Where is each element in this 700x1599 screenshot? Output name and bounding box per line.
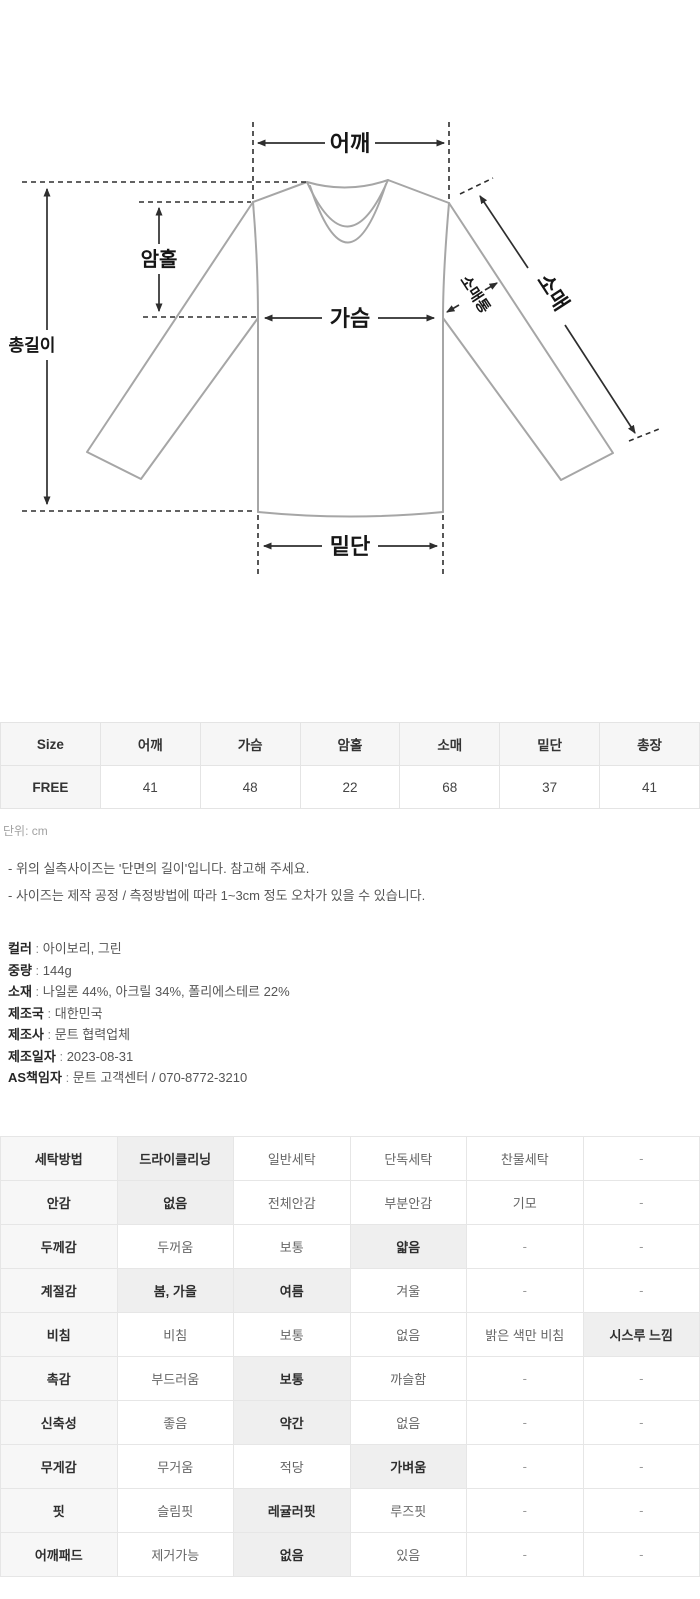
care-row-label: 어깨패드 bbox=[1, 1532, 118, 1576]
product-info-value: 문트 고객센터 / 070-8772-3210 bbox=[73, 1070, 247, 1085]
product-info-line: 소재 : 나일론 44%, 아크릴 34%, 폴리에스테르 22% bbox=[8, 981, 700, 1003]
label-armhole: 암홀 bbox=[141, 247, 178, 271]
product-info-value: 2023-08-31 bbox=[67, 1049, 134, 1064]
size-value-cell: 41 bbox=[100, 766, 200, 809]
care-row-label: 계절감 bbox=[1, 1268, 118, 1312]
product-info-separator: : bbox=[62, 1070, 73, 1085]
size-table-header-cell: Size bbox=[1, 723, 101, 766]
garment-measurement-diagram: 어깨 총길이 암홀 가슴 bbox=[0, 0, 700, 600]
care-option: 루즈핏 bbox=[350, 1488, 467, 1532]
care-option: - bbox=[583, 1400, 700, 1444]
size-value-cell: 68 bbox=[400, 766, 500, 809]
size-table-header-cell: 어깨 bbox=[100, 723, 200, 766]
product-info-separator: : bbox=[32, 984, 43, 999]
care-option: 무거움 bbox=[117, 1444, 234, 1488]
care-option: 슬림핏 bbox=[117, 1488, 234, 1532]
shirt-outline bbox=[87, 180, 613, 517]
product-detail-page: 어깨 총길이 암홀 가슴 bbox=[0, 0, 700, 1599]
size-table-header-cell: 총장 bbox=[600, 723, 700, 766]
size-value-cell: 22 bbox=[300, 766, 400, 809]
care-option: 보통 bbox=[234, 1224, 351, 1268]
product-info-line: 제조일자 : 2023-08-31 bbox=[8, 1046, 700, 1068]
product-info-line: 제조국 : 대한민국 bbox=[8, 1003, 700, 1025]
product-info-separator: : bbox=[56, 1049, 67, 1064]
care-row-label: 비침 bbox=[1, 1312, 118, 1356]
care-option: - bbox=[583, 1488, 700, 1532]
care-option-selected: 레귤러핏 bbox=[234, 1488, 351, 1532]
label-shoulder: 어깨 bbox=[330, 131, 370, 156]
care-option-selected: 없음 bbox=[234, 1532, 351, 1576]
label-sleeve-width: 소매통 bbox=[456, 273, 493, 317]
care-table: 세탁방법드라이클리닝일반세탁단독세탁찬물세탁-안감없음전체안감부분안감기모-두께… bbox=[0, 1136, 700, 1577]
size-value-cell: 37 bbox=[500, 766, 600, 809]
measure-sleeve: 소매 bbox=[480, 196, 635, 433]
care-table-row: 신축성좋음약간없음-- bbox=[1, 1400, 700, 1444]
care-table-row: 두께감두꺼움보통얇음-- bbox=[1, 1224, 700, 1268]
measure-total-length: 총길이 bbox=[9, 189, 56, 504]
care-table-row: 계절감봄, 가을여름겨울-- bbox=[1, 1268, 700, 1312]
care-row-label: 두께감 bbox=[1, 1224, 118, 1268]
measure-shoulder: 어깨 bbox=[258, 131, 444, 156]
care-option: - bbox=[583, 1180, 700, 1224]
care-row-label: 신축성 bbox=[1, 1400, 118, 1444]
product-info-value: 아이보리, 그린 bbox=[43, 941, 122, 956]
product-info-line: 컬러 : 아이보리, 그린 bbox=[8, 938, 700, 960]
care-option: - bbox=[583, 1532, 700, 1576]
size-value-cell: 41 bbox=[600, 766, 700, 809]
care-table-row: 세탁방법드라이클리닝일반세탁단독세탁찬물세탁- bbox=[1, 1136, 700, 1180]
care-option: - bbox=[583, 1224, 700, 1268]
unit-note: 단위: cm bbox=[0, 822, 700, 839]
care-option: 일반세탁 bbox=[234, 1136, 351, 1180]
care-row-label: 세탁방법 bbox=[1, 1136, 118, 1180]
care-option-selected: 봄, 가을 bbox=[117, 1268, 234, 1312]
product-info-separator: : bbox=[44, 1027, 55, 1042]
product-info: 컬러 : 아이보리, 그린중량 : 144g소재 : 나일론 44%, 아크릴 … bbox=[0, 938, 700, 1089]
product-info-label: 컬러 bbox=[8, 941, 32, 956]
measure-chest: 가슴 bbox=[265, 306, 434, 331]
care-option: 없음 bbox=[350, 1400, 467, 1444]
care-option: 적당 bbox=[234, 1444, 351, 1488]
size-table-header-cell: 가슴 bbox=[200, 723, 300, 766]
care-table-row: 비침비침보통없음밝은 색만 비침시스루 느낌 bbox=[1, 1312, 700, 1356]
care-option: 단독세탁 bbox=[350, 1136, 467, 1180]
care-option: 까슬함 bbox=[350, 1356, 467, 1400]
care-row-label: 안감 bbox=[1, 1180, 118, 1224]
size-table-header-cell: 암홀 bbox=[300, 723, 400, 766]
care-option: - bbox=[583, 1268, 700, 1312]
product-info-separator: : bbox=[44, 1006, 55, 1021]
product-info-separator: : bbox=[32, 963, 43, 978]
care-option: 좋음 bbox=[117, 1400, 234, 1444]
care-option: - bbox=[467, 1400, 584, 1444]
note-line: - 사이즈는 제작 공정 / 측정방법에 따라 1~3cm 정도 오차가 있을 … bbox=[8, 882, 700, 909]
size-table-header-cell: 밑단 bbox=[500, 723, 600, 766]
size-name-cell: FREE bbox=[1, 766, 101, 809]
care-option: - bbox=[467, 1268, 584, 1312]
care-table-row: 어깨패드제거가능없음있음-- bbox=[1, 1532, 700, 1576]
product-info-line: 중량 : 144g bbox=[8, 960, 700, 982]
size-table-header-cell: 소매 bbox=[400, 723, 500, 766]
care-table-row: 촉감부드러움보통까슬함-- bbox=[1, 1356, 700, 1400]
care-option-selected: 얇음 bbox=[350, 1224, 467, 1268]
care-option: 비침 bbox=[117, 1312, 234, 1356]
care-option: 없음 bbox=[350, 1312, 467, 1356]
care-option: - bbox=[583, 1356, 700, 1400]
product-info-value: 대한민국 bbox=[55, 1006, 103, 1021]
product-info-line: AS책임자 : 문트 고객센터 / 070-8772-3210 bbox=[8, 1067, 700, 1089]
care-option-selected: 여름 bbox=[234, 1268, 351, 1312]
label-hem: 밑단 bbox=[330, 534, 370, 559]
care-table-row: 무게감무거움적당가벼움-- bbox=[1, 1444, 700, 1488]
care-table-row: 핏슬림핏레귤러핏루즈핏-- bbox=[1, 1488, 700, 1532]
care-option-selected: 가벼움 bbox=[350, 1444, 467, 1488]
measure-hem: 밑단 bbox=[264, 534, 437, 559]
garment-diagram-svg: 어깨 총길이 암홀 가슴 bbox=[0, 0, 700, 600]
care-option: - bbox=[467, 1488, 584, 1532]
care-option: 두꺼움 bbox=[117, 1224, 234, 1268]
care-option: 찬물세탁 bbox=[467, 1136, 584, 1180]
care-option: 전체안감 bbox=[234, 1180, 351, 1224]
product-info-label: 중량 bbox=[8, 963, 32, 978]
measure-guides bbox=[22, 122, 659, 574]
label-sleeve: 소매 bbox=[532, 270, 572, 315]
product-info-label: 제조사 bbox=[8, 1027, 44, 1042]
care-option: 겨울 bbox=[350, 1268, 467, 1312]
product-info-value: 144g bbox=[43, 963, 72, 978]
care-row-label: 무게감 bbox=[1, 1444, 118, 1488]
care-table-row: 안감없음전체안감부분안감기모- bbox=[1, 1180, 700, 1224]
care-option-selected: 시스루 느낌 bbox=[583, 1312, 700, 1356]
product-info-label: 제조일자 bbox=[8, 1049, 56, 1064]
product-info-separator: : bbox=[32, 941, 43, 956]
measure-sleeve-width: 소매통 bbox=[447, 273, 497, 317]
product-info-label: AS책임자 bbox=[8, 1070, 62, 1085]
size-notes: - 위의 실측사이즈는 '단면의 길이'입니다. 참고해 주세요.- 사이즈는 … bbox=[0, 855, 700, 909]
size-table: Size어깨가슴암홀소매밑단총장 FREE414822683741 bbox=[0, 722, 700, 809]
care-option: 보통 bbox=[234, 1312, 351, 1356]
care-option: - bbox=[583, 1136, 700, 1180]
product-info-line: 제조사 : 문트 협력업체 bbox=[8, 1024, 700, 1046]
care-option: 부드러움 bbox=[117, 1356, 234, 1400]
care-option: - bbox=[467, 1532, 584, 1576]
care-option: - bbox=[583, 1444, 700, 1488]
product-info-label: 소재 bbox=[8, 984, 32, 999]
size-table-header-row: Size어깨가슴암홀소매밑단총장 bbox=[1, 723, 700, 766]
product-info-label: 제조국 bbox=[8, 1006, 44, 1021]
size-value-cell: 48 bbox=[200, 766, 300, 809]
care-option: 있음 bbox=[350, 1532, 467, 1576]
product-info-value: 나일론 44%, 아크릴 34%, 폴리에스테르 22% bbox=[43, 984, 290, 999]
care-option: 기모 bbox=[467, 1180, 584, 1224]
care-option: 부분안감 bbox=[350, 1180, 467, 1224]
care-option: - bbox=[467, 1444, 584, 1488]
care-option-selected: 약간 bbox=[234, 1400, 351, 1444]
measure-armhole: 암홀 bbox=[141, 208, 178, 311]
care-option-selected: 없음 bbox=[117, 1180, 234, 1224]
label-total-length: 총길이 bbox=[9, 336, 56, 355]
care-option: - bbox=[467, 1356, 584, 1400]
care-option: 제거가능 bbox=[117, 1532, 234, 1576]
note-line: - 위의 실측사이즈는 '단면의 길이'입니다. 참고해 주세요. bbox=[8, 855, 700, 882]
care-option: 밝은 색만 비침 bbox=[467, 1312, 584, 1356]
care-row-label: 핏 bbox=[1, 1488, 118, 1532]
size-table-row: FREE414822683741 bbox=[1, 766, 700, 809]
care-row-label: 촉감 bbox=[1, 1356, 118, 1400]
product-info-value: 문트 협력업체 bbox=[55, 1027, 130, 1042]
care-option-selected: 드라이클리닝 bbox=[117, 1136, 234, 1180]
care-option-selected: 보통 bbox=[234, 1356, 351, 1400]
care-option: - bbox=[467, 1224, 584, 1268]
label-chest: 가슴 bbox=[330, 306, 370, 331]
